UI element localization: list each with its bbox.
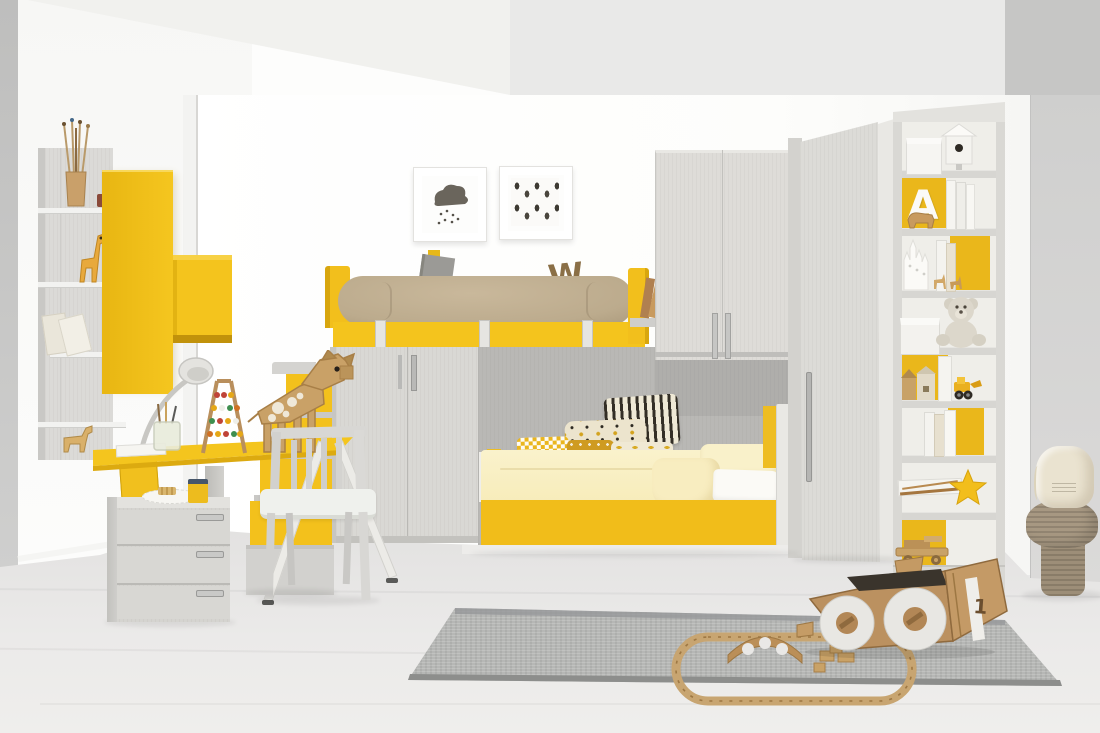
corner-wardrobe-strip bbox=[788, 138, 802, 558]
underbunk-handle-left bbox=[398, 355, 402, 389]
deer-figurines bbox=[932, 272, 966, 290]
shelf-board-7 bbox=[902, 512, 996, 520]
bed-shadow bbox=[470, 550, 800, 557]
cloud-rain-art bbox=[425, 180, 473, 228]
drawer-handle-3 bbox=[196, 590, 224, 597]
bison-figurine bbox=[906, 210, 936, 229]
white-sheet-fold bbox=[712, 469, 777, 503]
white-storage-box bbox=[906, 138, 942, 175]
brush-cup bbox=[56, 118, 96, 210]
chair-slat-2 bbox=[306, 439, 312, 492]
yellow-box-shelf bbox=[173, 255, 232, 343]
yellow-cup bbox=[188, 479, 208, 503]
shelf2-book-1 bbox=[946, 180, 956, 230]
chair-slat-3 bbox=[321, 438, 327, 492]
drawer-handle-1 bbox=[196, 514, 224, 521]
drawer-handle-2 bbox=[196, 551, 224, 558]
star-wand bbox=[948, 468, 988, 508]
teddy-bear bbox=[934, 292, 988, 348]
bolster-seam-right bbox=[586, 282, 606, 320]
corner-wardrobe-door bbox=[800, 122, 880, 562]
waffle-snack bbox=[158, 487, 176, 495]
bridge-wardrobe-gap bbox=[722, 150, 723, 357]
bridge-handle-left bbox=[712, 313, 718, 359]
canvas-bag bbox=[1036, 446, 1094, 508]
floor-plank-line-3 bbox=[40, 703, 1100, 705]
shelf6-book-3 bbox=[944, 410, 956, 457]
desk-foot-right bbox=[386, 578, 398, 583]
pencil-jar bbox=[150, 398, 184, 452]
left-wall-sliver bbox=[0, 0, 18, 570]
castle-silhouette bbox=[900, 238, 936, 290]
underbunk-cabinet-base bbox=[336, 536, 478, 543]
chair-slat-1 bbox=[291, 440, 297, 492]
cardboard-race-car: 1 bbox=[795, 553, 1013, 661]
bag-print bbox=[1052, 480, 1076, 492]
right-wall-upper bbox=[1005, 0, 1100, 95]
bridge-handle-right bbox=[725, 313, 731, 359]
bridge-wardrobe bbox=[655, 150, 791, 360]
car-number: 1 bbox=[973, 594, 989, 619]
stairs-shadow bbox=[244, 589, 338, 597]
shelf2-book-3 bbox=[966, 184, 975, 230]
bag-drawstring bbox=[1034, 466, 1041, 500]
birdhouse bbox=[940, 122, 978, 170]
bridge-wardrobe-bottom bbox=[655, 352, 790, 357]
drawer-unit-side bbox=[107, 497, 117, 622]
handprints-art bbox=[511, 178, 559, 226]
bed-yellow-base bbox=[481, 500, 790, 550]
shelf2-book-2 bbox=[956, 182, 966, 230]
corner-wardrobe-handle bbox=[806, 372, 812, 482]
chair-slat-4 bbox=[336, 437, 342, 492]
house-figurines bbox=[900, 366, 938, 400]
underbunk-handle-right bbox=[411, 355, 417, 391]
bedroom-scene: W bbox=[0, 0, 1100, 733]
toy-excavator bbox=[950, 374, 984, 401]
underbunk-door-gap bbox=[407, 347, 408, 536]
bolster-seam-left bbox=[372, 282, 392, 320]
